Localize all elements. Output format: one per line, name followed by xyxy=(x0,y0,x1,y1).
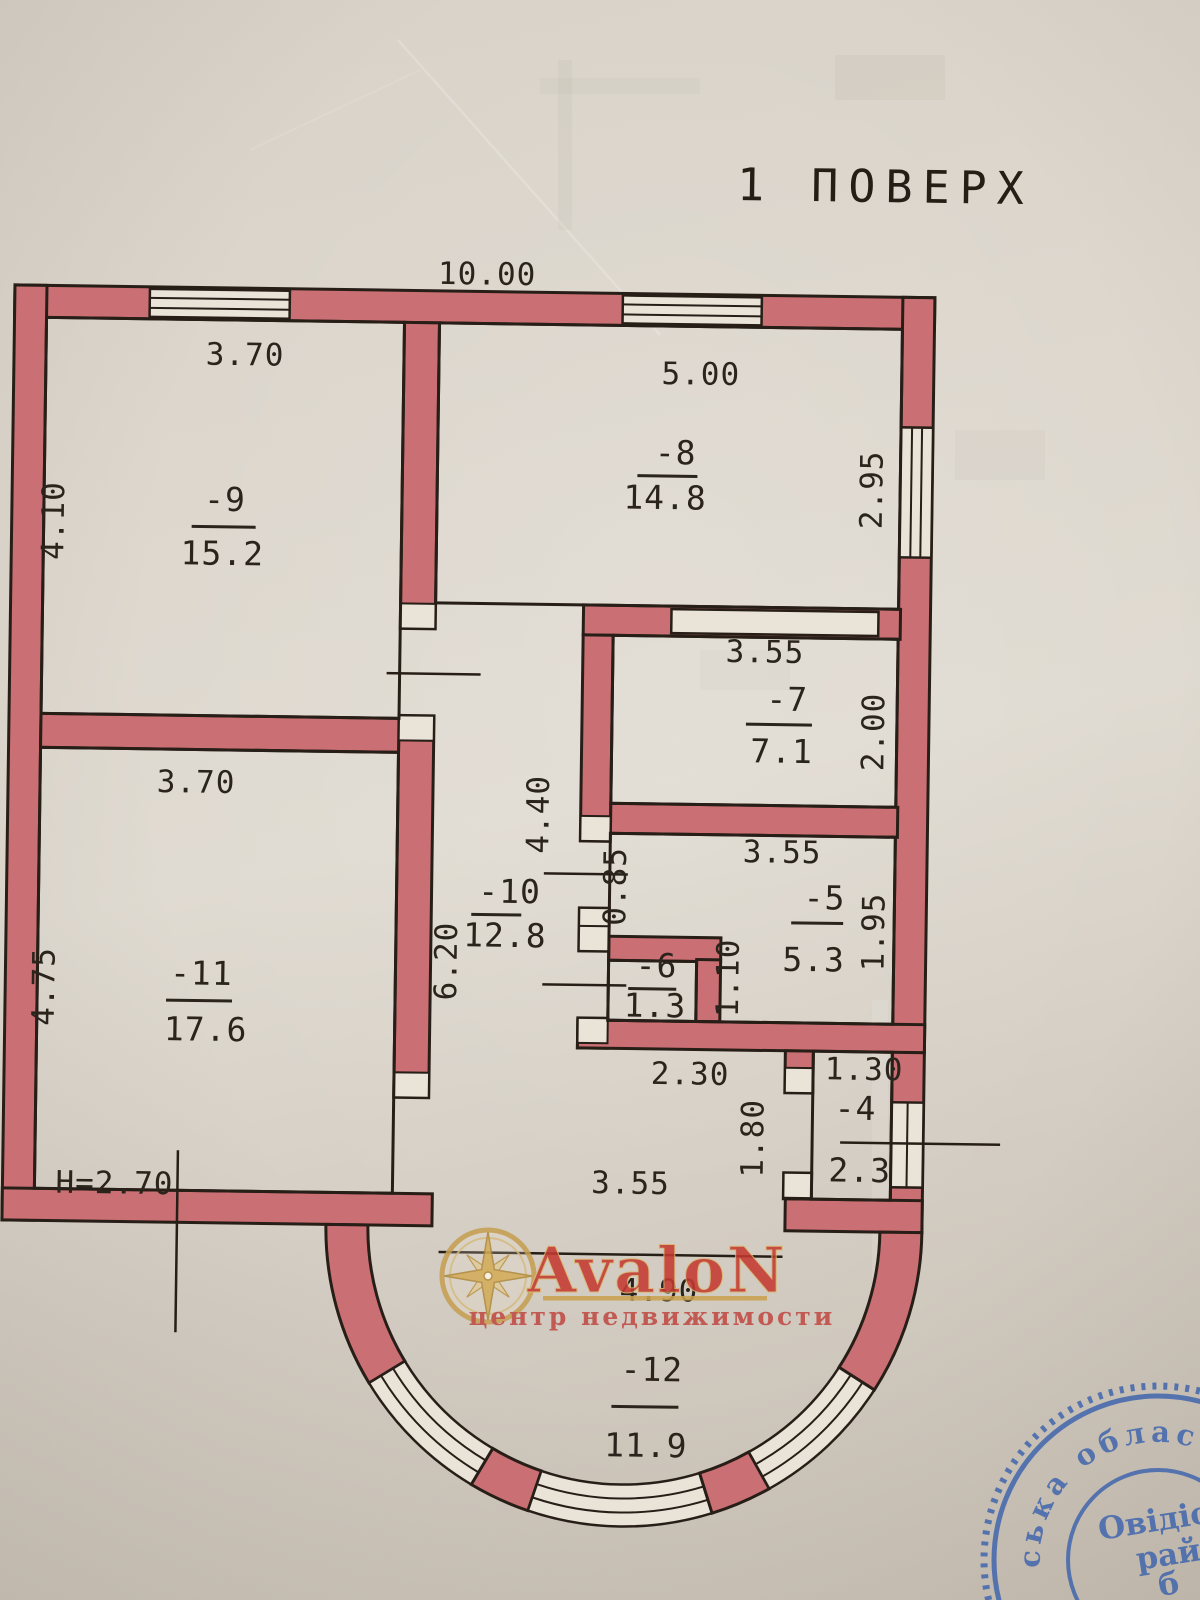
dim-room11-height: 4.75 xyxy=(26,947,63,1026)
watermark: AvaloN центр недвижимости xyxy=(442,1230,835,1331)
wall-bottom-right xyxy=(785,1199,922,1233)
window-room8-top xyxy=(623,295,762,325)
section-line xyxy=(175,1150,178,1332)
watermark-tagline: центр недвижимости xyxy=(469,1302,836,1331)
dim-hall-length: 6.20 xyxy=(428,921,465,1000)
dim-ceiling-height: H=2.70 xyxy=(55,1165,173,1203)
bay-window xyxy=(748,1366,874,1490)
dim-room5-height: 1.95 xyxy=(856,892,893,971)
door-opening-room7 xyxy=(671,609,878,636)
door-tick xyxy=(542,984,626,985)
dim-room5-width: 3.55 xyxy=(743,834,822,871)
door-jamb xyxy=(785,1068,813,1093)
room-5-area: 5.3 xyxy=(782,940,845,980)
dim-room11-width: 3.70 xyxy=(156,764,235,801)
room-11-area: 17.6 xyxy=(164,1009,248,1049)
watermark-underline xyxy=(543,1296,767,1301)
door-jamb xyxy=(783,1173,811,1198)
room-4-number: -4 xyxy=(834,1088,876,1128)
wall-hall-left-upper xyxy=(400,322,439,628)
dim-room7-height: 2.00 xyxy=(855,692,892,771)
room-12-area: 11.9 xyxy=(604,1425,688,1465)
room-5-number: -5 xyxy=(803,878,845,918)
room-11-number: -11 xyxy=(170,953,233,993)
wall-hall-left-lower xyxy=(394,715,434,1097)
dim-overall-width: 10.00 xyxy=(438,256,537,293)
room-7-area: 7.1 xyxy=(750,731,813,771)
dim-room7-width: 3.55 xyxy=(725,634,804,671)
dim-hall-upper: 4.40 xyxy=(520,775,557,854)
room-6-number: -6 xyxy=(635,946,677,986)
wall-room9-room11 xyxy=(41,713,399,752)
dim-room9-height: 4.10 xyxy=(35,481,72,560)
room-9-number: -9 xyxy=(204,480,246,520)
door-jamb xyxy=(399,715,434,740)
room-8-area: 14.8 xyxy=(623,477,707,517)
watermark-brand: AvaloN xyxy=(526,1233,786,1307)
room-12-number: -12 xyxy=(620,1349,683,1389)
wall-room7-room5 xyxy=(610,803,897,837)
room-6-area: 1.3 xyxy=(623,986,686,1026)
bay-wall-segment xyxy=(839,1232,922,1391)
dim-corridor-width: 2.30 xyxy=(650,1056,729,1093)
dim-room8-width: 5.00 xyxy=(661,356,740,393)
dim-room4-width: 1.30 xyxy=(825,1051,904,1088)
room-10-number: -10 xyxy=(478,871,541,911)
dim-room9-width: 3.70 xyxy=(205,337,284,374)
wall-block-left-1 xyxy=(580,635,613,841)
window-tick xyxy=(840,1143,1000,1145)
floor-plan-scan: 1 ПОВЕРХ xyxy=(0,0,1200,1600)
room-10-area: 12.8 xyxy=(463,915,547,955)
door-jamb xyxy=(580,816,610,841)
room-8-number: -8 xyxy=(655,433,697,473)
bay-window xyxy=(368,1361,494,1485)
door-jamb xyxy=(579,926,609,951)
bay-wall-segment xyxy=(324,1224,407,1383)
door-jamb xyxy=(394,1072,429,1097)
dim-niche: 0.85 xyxy=(597,847,634,926)
window-room8-right xyxy=(899,427,933,557)
room-4-area: 2.3 xyxy=(828,1150,891,1190)
room-9-area: 15.2 xyxy=(180,533,264,573)
dim-room6-height: 1.10 xyxy=(710,938,747,1017)
door-jamb xyxy=(577,1018,607,1043)
dim-corridor-bottom: 3.55 xyxy=(591,1165,670,1202)
dim-corridor-depth: 1.80 xyxy=(735,1099,772,1178)
dim-room8-height: 2.95 xyxy=(854,450,891,529)
room-7-number: -7 xyxy=(766,679,808,719)
floor-title: 1 ПОВЕРХ xyxy=(737,158,1034,215)
window-room9-top xyxy=(150,289,290,319)
door-jamb xyxy=(400,603,435,628)
